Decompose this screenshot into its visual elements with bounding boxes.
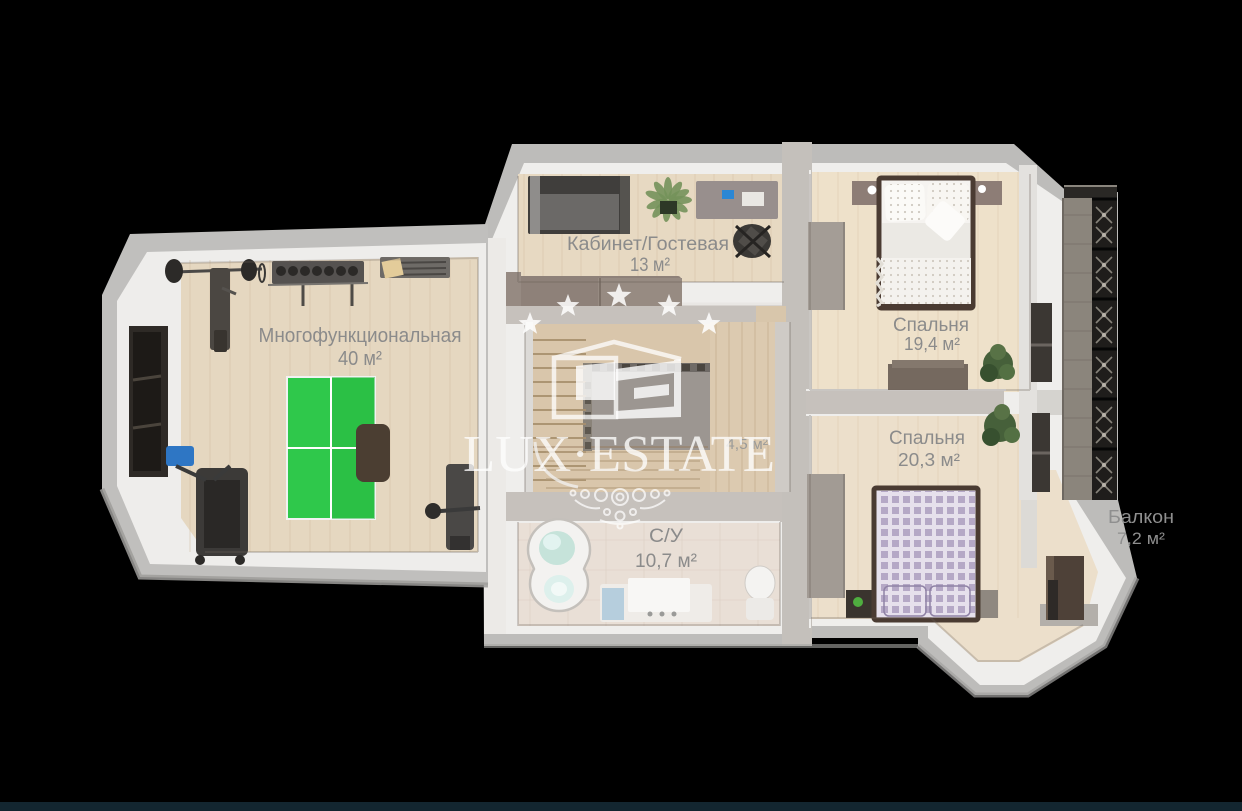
svg-text:Кабинет/Гостевая: Кабинет/Гостевая (567, 234, 729, 255)
svg-text:40 м²: 40 м² (338, 348, 382, 370)
svg-text:Многофункциональная: Многофункциональная (259, 325, 462, 347)
svg-text:Балкон: Балкон (1108, 507, 1174, 527)
svg-text:10,7 м²: 10,7 м² (635, 551, 697, 572)
svg-text:Спальня: Спальня (889, 428, 965, 449)
svg-text:20,3 м²: 20,3 м² (898, 450, 960, 470)
svg-text:С/У: С/У (649, 526, 684, 547)
svg-text:7,2 м²: 7,2 м² (1117, 529, 1165, 548)
svg-text:19,4 м²: 19,4 м² (904, 334, 960, 354)
svg-text:LUX·ESTATE: LUX·ESTATE (463, 426, 775, 483)
svg-text:Спальня: Спальня (893, 315, 969, 336)
svg-text:13 м²: 13 м² (630, 255, 670, 276)
